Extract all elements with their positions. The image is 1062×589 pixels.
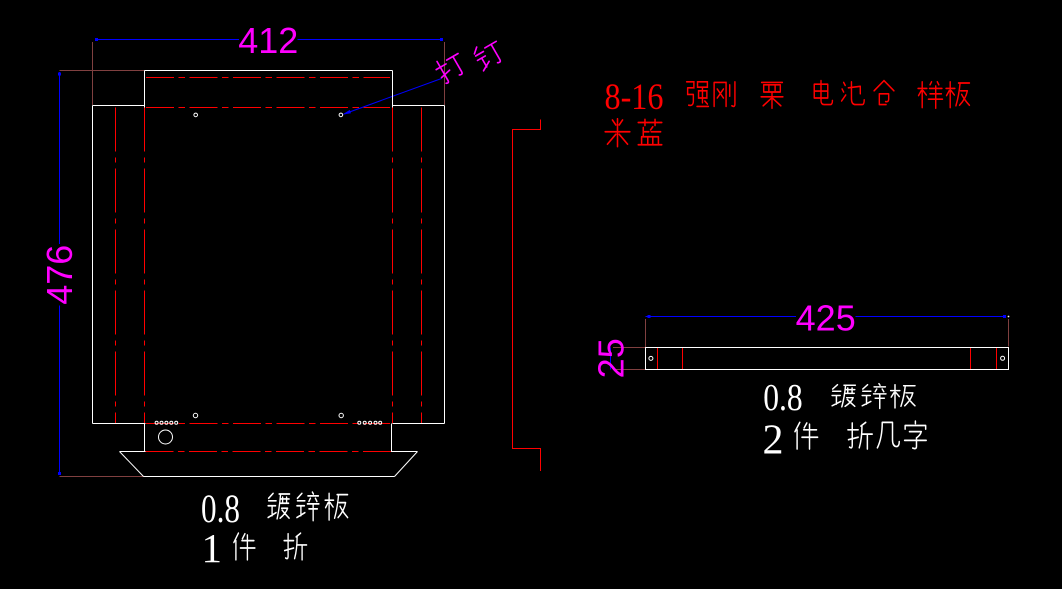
svg-text:425: 425 (796, 297, 856, 338)
svg-text:1: 1 (202, 525, 223, 571)
svg-text:412: 412 (238, 20, 298, 61)
svg-text:25: 25 (590, 338, 631, 378)
svg-text:2: 2 (763, 417, 784, 463)
svg-text:8-16: 8-16 (605, 77, 664, 118)
svg-text:476: 476 (39, 245, 80, 305)
svg-text:0.8: 0.8 (763, 377, 803, 419)
